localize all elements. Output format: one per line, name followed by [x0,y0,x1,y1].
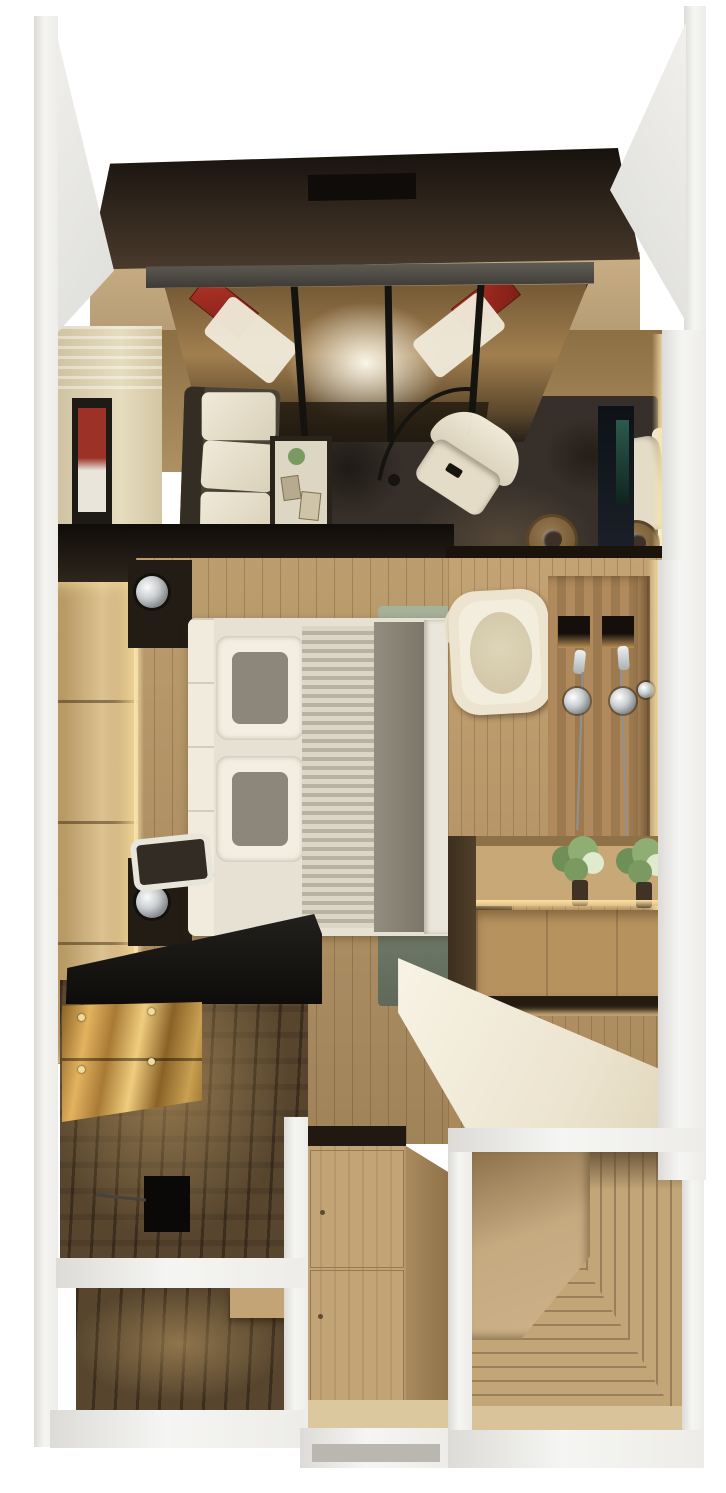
shower-mixer [564,688,590,714]
outer-wall-right [684,6,706,342]
pillow [216,636,304,740]
sofa [179,386,280,541]
shelf-unit-front [476,910,688,996]
outer-wall-right [662,330,706,580]
console-table [270,436,332,536]
shelf-led-light [476,900,688,910]
double-bed [188,618,464,936]
outer-wall-right [658,560,706,1180]
wardrobe-niche [306,1126,406,1148]
ribbed-throw [302,626,376,928]
wardrobe-side-panel [406,1146,452,1430]
pillow [216,756,304,862]
partition-wall [448,1128,704,1152]
bathtub [447,587,553,716]
leaf-icon [628,860,652,884]
cabinet-divider [62,1058,202,1061]
pillow-center [232,772,288,846]
sofa-cushion [202,392,276,440]
photo-frame [280,475,301,501]
floor-stool [144,1176,190,1232]
sofa-cushion [200,440,275,493]
partition-wall [448,1128,472,1458]
shower-niche [558,616,590,648]
wardrobe-door [310,1150,404,1268]
plant-icon [288,448,305,465]
entry-threshold [470,1406,686,1432]
outer-wall-bottom [50,1410,306,1448]
canopy-roof [88,146,640,272]
ceiling-slats [58,326,162,390]
cabinet-knob [148,1008,155,1015]
grey-blanket [374,622,426,932]
outer-wall-right [682,1180,704,1458]
wall-art-canvas [78,408,106,512]
flower-vase [552,836,608,892]
shower-mixer [610,688,636,714]
floorplan-render [0,0,726,1493]
leaf-icon [564,858,588,882]
door-handle [318,1314,323,1319]
outer-wall-bottom [448,1430,704,1468]
cabinet-knob [78,1014,85,1021]
tv-glass-strip [616,420,629,504]
partition-wall [56,1258,306,1288]
bed-bench [130,832,215,892]
cabinet-knob [78,1066,85,1073]
lamp-base [388,474,400,486]
door-mat [312,1444,440,1462]
shower-niche [602,616,634,648]
pillow-center [232,652,288,724]
wall-art [72,398,112,524]
door-handle [320,1210,325,1215]
cabinet-knob [148,1058,155,1065]
wardrobe-baseboard [304,1400,452,1430]
photo-frame [299,491,322,521]
canopy-vent [308,173,416,201]
bed-headboard [188,618,214,936]
bedside-lamp [136,576,168,608]
hand-shower [617,646,630,671]
outer-wall-left [34,16,58,1447]
